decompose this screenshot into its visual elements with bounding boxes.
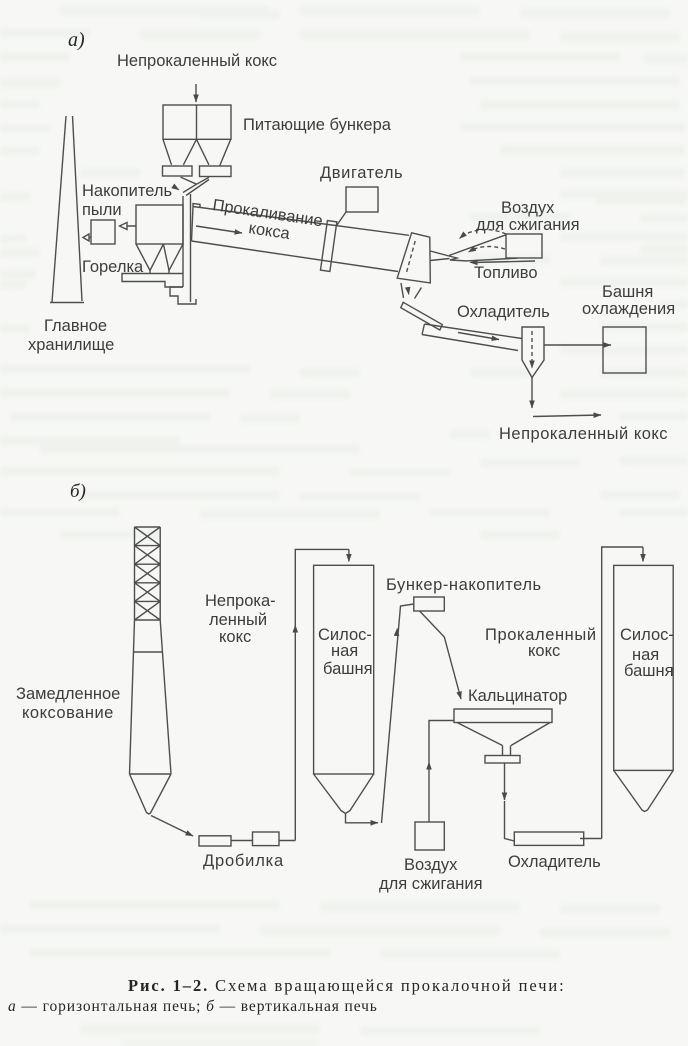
svg-text:Бункер-накопитель: Бункер-накопитель	[386, 576, 542, 594]
svg-text:пыли: пыли	[82, 201, 122, 219]
svg-text:Замедленное: Замедленное	[16, 685, 120, 703]
svg-text:Питающие бункера: Питающие бункера	[243, 116, 392, 134]
svg-text:Воздух: Воздух	[404, 856, 458, 874]
svg-text:башня: башня	[323, 660, 373, 678]
svg-text:Воздух: Воздух	[501, 199, 555, 217]
svg-text:Охладитель: Охладитель	[457, 303, 550, 321]
svg-text:Дробилка: Дробилка	[203, 852, 284, 870]
svg-text:Непрокаленный кокс: Непрокаленный кокс	[499, 425, 668, 443]
svg-text:Непрокаленный кокс: Непрокаленный кокс	[117, 52, 277, 70]
svg-text:для сжигания: для сжигания	[379, 875, 483, 893]
svg-text:кокс: кокс	[219, 628, 251, 646]
svg-text:башня: башня	[624, 662, 674, 680]
svg-text:Накопитель: Накопитель	[82, 182, 172, 200]
svg-text:Непрока-: Непрока-	[205, 592, 276, 610]
svg-text:охлаждения: охлаждения	[582, 300, 675, 318]
svg-text:Горелка: Горелка	[82, 258, 144, 276]
svg-text:кокс: кокс	[528, 642, 560, 660]
svg-text:Рис. 1–2. Схема вращающейся пр: Рис. 1–2. Схема вращающейся прокалочной …	[128, 976, 566, 995]
svg-text:Двигатель: Двигатель	[320, 164, 403, 182]
svg-text:коксование: коксование	[22, 704, 114, 722]
svg-text:а — горизонтальная печь; б — в: а — горизонтальная печь; б — вертикальна…	[8, 998, 378, 1015]
svg-text:хранилище: хранилище	[28, 336, 114, 354]
svg-text:Топливо: Топливо	[474, 264, 538, 282]
svg-text:для сжигания: для сжигания	[476, 216, 580, 234]
svg-text:ленный: ленный	[209, 611, 267, 629]
svg-text:Кальцинатор: Кальцинатор	[468, 687, 567, 705]
svg-text:а): а)	[68, 29, 85, 51]
svg-text:ная: ная	[331, 642, 358, 660]
svg-text:Силос-: Силос-	[620, 626, 674, 644]
svg-text:б): б)	[70, 481, 86, 502]
svg-text:Охладитель: Охладитель	[508, 853, 601, 871]
svg-text:Главное: Главное	[44, 317, 107, 335]
svg-text:Башня: Башня	[602, 283, 653, 301]
